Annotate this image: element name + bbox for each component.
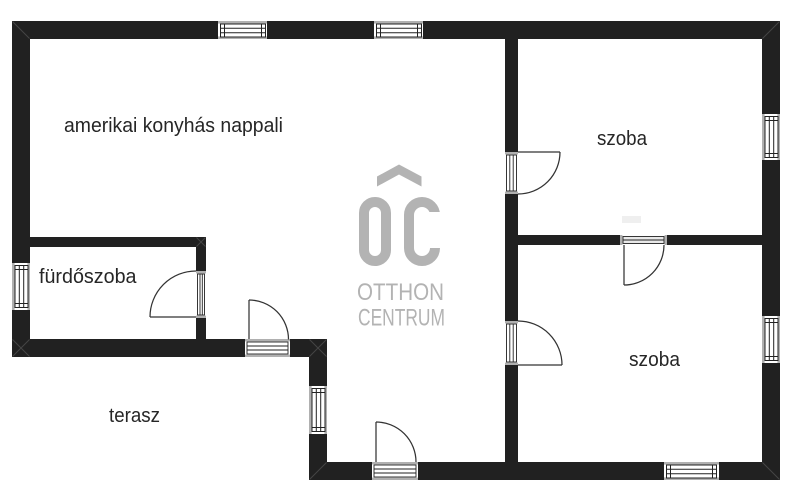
svg-text:amerikai konyhás nappali: amerikai konyhás nappali: [64, 115, 283, 137]
svg-text:terasz: terasz: [109, 405, 160, 427]
svg-text:fürdőszoba: fürdőszoba: [39, 266, 137, 288]
svg-text:szoba: szoba: [597, 128, 648, 150]
svg-text:szoba: szoba: [629, 349, 681, 371]
svg-text:OTTHON: OTTHON: [357, 279, 444, 306]
svg-text:CENTRUM: CENTRUM: [358, 305, 445, 332]
